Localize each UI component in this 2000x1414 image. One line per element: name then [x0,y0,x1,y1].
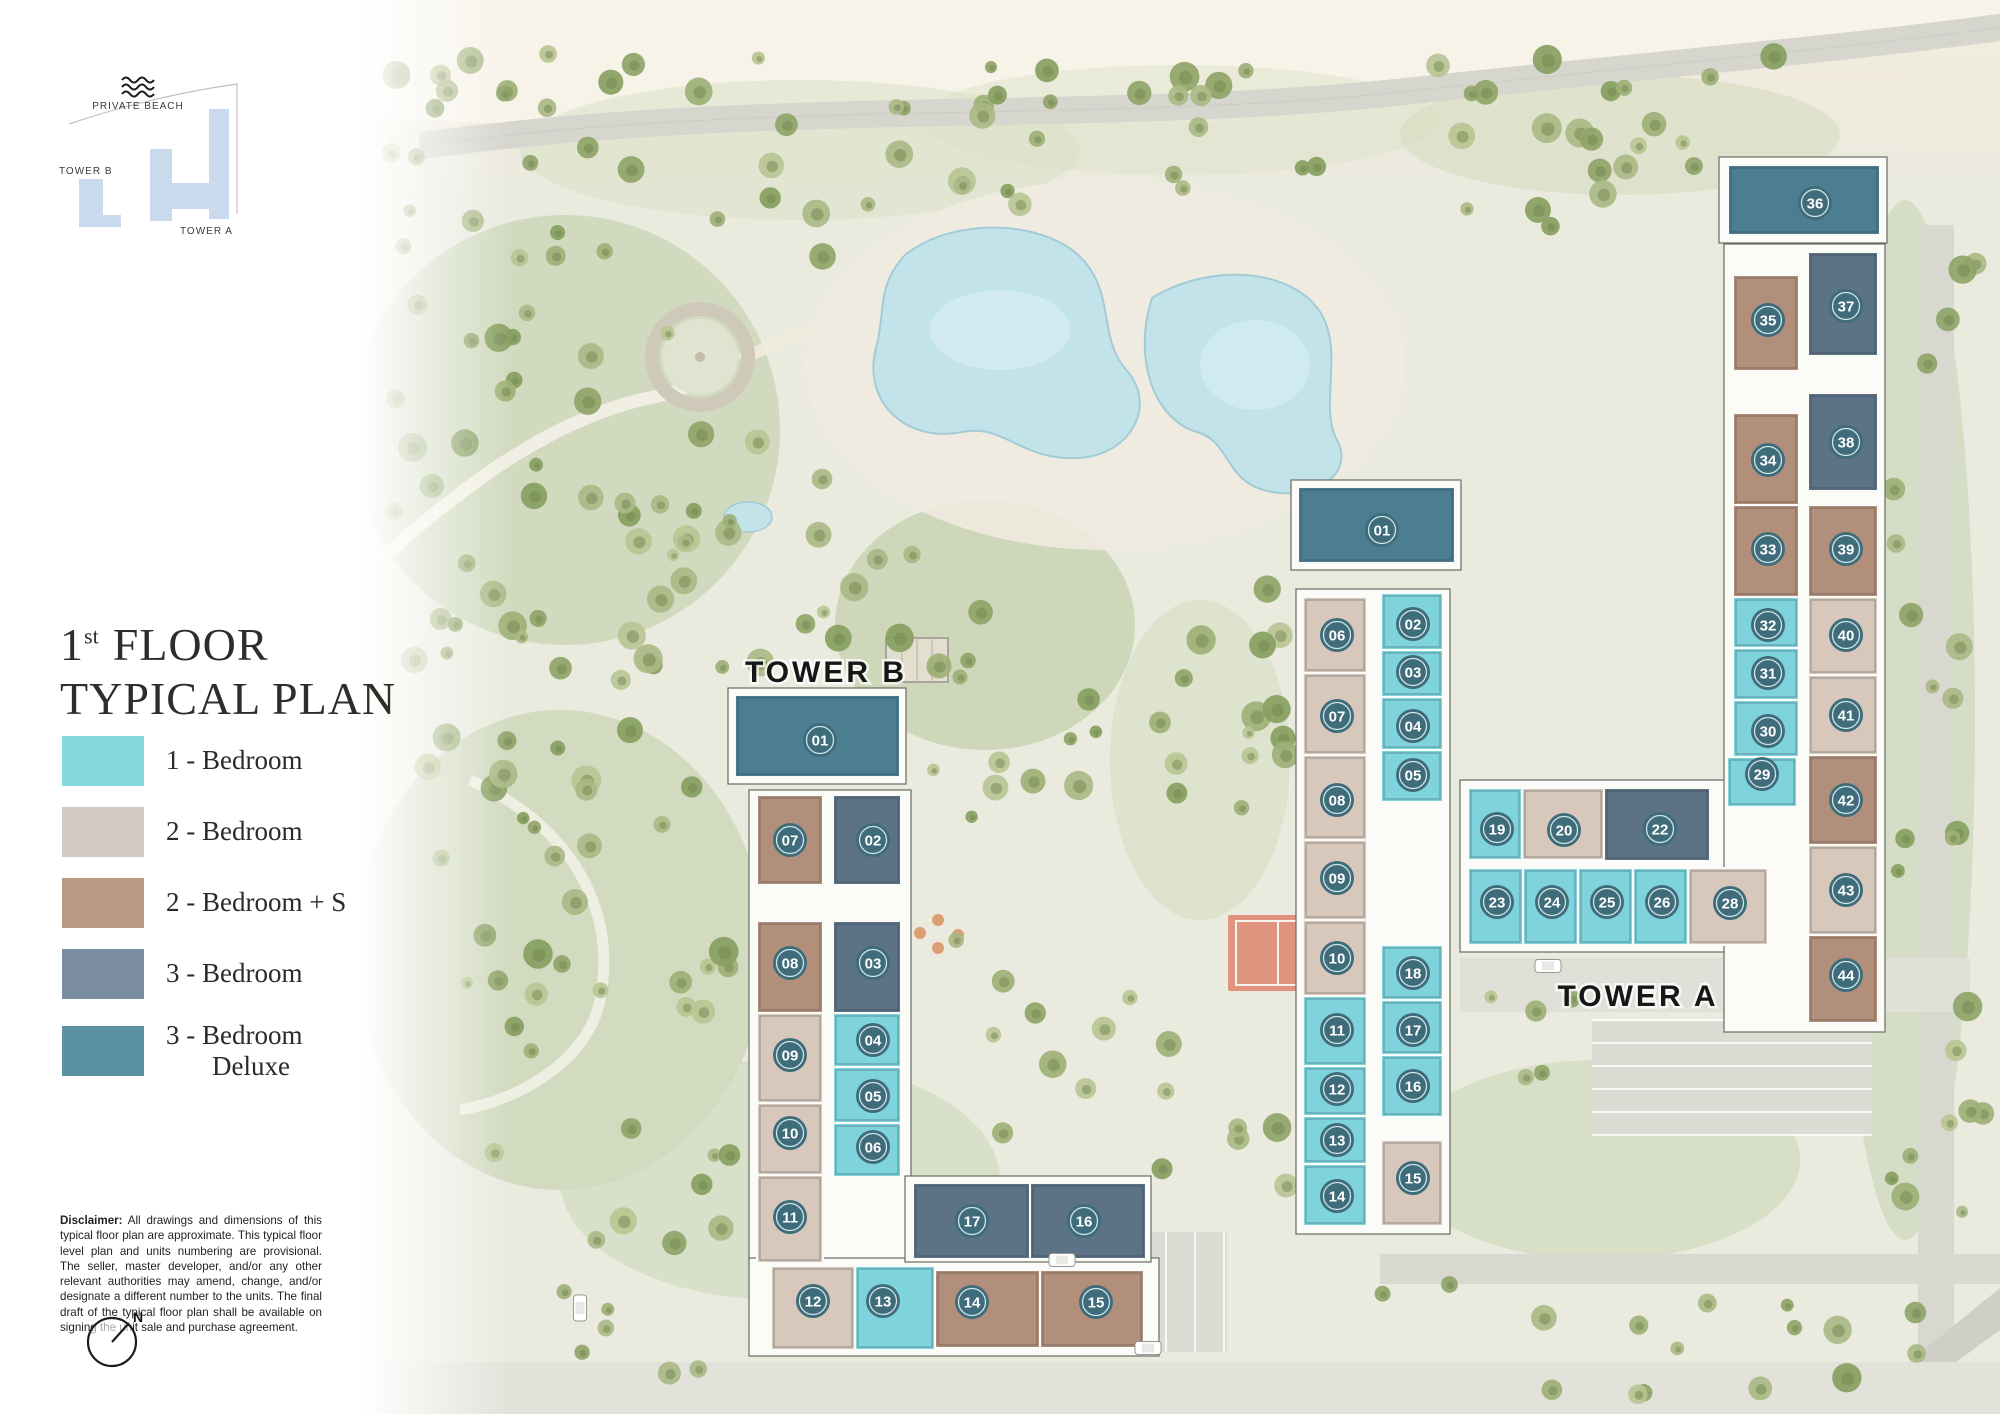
unit-badge-a-03: 03 [1396,655,1430,689]
unit-badge-a-12: 12 [1320,1072,1354,1106]
unit-number: 34 [1760,452,1777,469]
unit-badge-b-13: 13 [866,1284,900,1318]
unit-badge-a-39: 39 [1829,532,1863,566]
unit-badge-b-09: 09 [773,1038,807,1072]
unit-number: 14 [1329,1188,1346,1205]
unit-badge-a-17: 17 [1396,1013,1430,1047]
unit-number: 24 [1544,894,1561,911]
unit-badge-a-37: 37 [1829,289,1863,323]
car [574,1295,587,1321]
unit-badge-a-24: 24 [1535,885,1569,919]
floor-plan-page: 0107020803090405100611121317161415010607… [0,0,2000,1414]
unit-number: 12 [805,1293,822,1310]
unit-number: 41 [1838,707,1855,724]
unit-number: 36 [1807,195,1824,212]
unit-number: 13 [875,1293,892,1310]
tower-b-unit-14 [935,1270,1040,1348]
unit-number: 06 [1329,627,1346,644]
unit-number: 35 [1760,312,1777,329]
unit-number: 05 [865,1088,882,1105]
unit-number: 26 [1654,894,1671,911]
unit-badge-a-18: 18 [1396,956,1430,990]
unit-number: 08 [782,955,799,972]
unit-number: 40 [1838,627,1855,644]
car [1135,1342,1161,1355]
unit-badge-a-40: 40 [1829,618,1863,652]
unit-number: 01 [812,732,829,749]
unit-badge-a-22: 22 [1643,812,1677,846]
unit-number: 02 [1405,616,1422,633]
unit-number: 17 [1405,1022,1422,1039]
unit-number: 11 [782,1209,798,1226]
unit-badge-b-05: 05 [856,1079,890,1113]
unit-number: 01 [1374,522,1391,539]
unit-number: 08 [1329,792,1346,809]
unit-number: 33 [1760,541,1777,558]
unit-number: 43 [1838,882,1855,899]
unit-number: 14 [964,1294,981,1311]
unit-badge-a-05: 05 [1396,758,1430,792]
unit-badge-b-08: 08 [773,946,807,980]
unit-badge-a-43: 43 [1829,873,1863,907]
unit-badge-a-08: 08 [1320,783,1354,817]
unit-number: 16 [1076,1213,1093,1230]
unit-badge-a-04: 04 [1396,709,1430,743]
unit-badge-b-11: 11 [773,1200,807,1234]
unit-badge-a-01: 01 [1365,513,1399,547]
unit-badge-b-06: 06 [856,1130,890,1164]
unit-number: 15 [1405,1170,1422,1187]
unit-badge-a-02: 02 [1396,607,1430,641]
car [1049,1254,1075,1267]
unit-number: 03 [865,955,882,972]
unit-badge-a-10: 10 [1320,941,1354,975]
unit-number: 10 [782,1125,799,1142]
unit-badge-a-23: 23 [1480,885,1514,919]
unit-badge-a-38: 38 [1829,425,1863,459]
unit-badge-b-14: 14 [955,1285,989,1319]
unit-badge-a-34: 34 [1751,443,1785,477]
unit-badge-a-29: 29 [1745,757,1779,791]
tower-b-plan-label: TOWER B [745,656,907,689]
unit-badge-a-07: 07 [1320,699,1354,733]
unit-number: 05 [1405,767,1422,784]
unit-number: 07 [782,832,799,849]
unit-number: 16 [1405,1078,1422,1095]
unit-number: 30 [1760,723,1777,740]
unit-number: 38 [1838,434,1855,451]
unit-badge-b-10: 10 [773,1116,807,1150]
unit-number: 42 [1838,792,1855,809]
unit-number: 06 [865,1139,882,1156]
unit-badge-a-13: 13 [1320,1123,1354,1157]
car [1535,960,1561,973]
unit-badge-a-19: 19 [1480,812,1514,846]
unit-badge-a-30: 30 [1751,714,1785,748]
unit-badge-a-28: 28 [1713,886,1747,920]
unit-number: 20 [1556,822,1573,839]
unit-badge-a-33: 33 [1751,532,1785,566]
unit-badge-b-03: 03 [856,946,890,980]
unit-number: 09 [1329,870,1346,887]
unit-number: 37 [1838,298,1855,315]
unit-badge-a-31: 31 [1751,656,1785,690]
unit-number: 25 [1599,894,1616,911]
unit-badge-a-20: 20 [1547,813,1581,847]
unit-badge-a-14: 14 [1320,1179,1354,1213]
unit-number: 29 [1754,766,1771,783]
unit-badge-a-32: 32 [1751,608,1785,642]
unit-number: 02 [865,832,882,849]
unit-number: 39 [1838,541,1855,558]
unit-number: 07 [1329,708,1346,725]
unit-number: 18 [1405,965,1422,982]
unit-badge-a-42: 42 [1829,783,1863,817]
unit-badge-a-36: 36 [1798,186,1832,220]
unit-number: 15 [1088,1294,1105,1311]
tower-a-plan-label: TOWER A [1558,980,1719,1013]
site-plan: 0107020803090405100611121317161415010607… [0,0,2000,1414]
unit-number: 11 [1329,1022,1345,1039]
unit-number: 19 [1489,821,1506,838]
unit-badge-b-16: 16 [1067,1204,1101,1238]
unit-badge-a-15: 15 [1396,1161,1430,1195]
unit-badge-a-09: 09 [1320,861,1354,895]
unit-badge-a-25: 25 [1590,885,1624,919]
unit-number: 09 [782,1047,799,1064]
unit-badge-b-01: 01 [803,723,837,757]
left-white-area [0,0,360,1414]
unit-badge-b-02: 02 [856,823,890,857]
unit-number: 12 [1329,1081,1346,1098]
unit-badge-b-17: 17 [955,1204,989,1238]
unit-number: 10 [1329,950,1346,967]
left-fade [360,0,510,1414]
unit-number: 04 [1405,718,1422,735]
unit-number: 13 [1329,1132,1346,1149]
unit-badge-a-26: 26 [1645,885,1679,919]
unit-badge-b-12: 12 [796,1284,830,1318]
unit-number: 23 [1489,894,1506,911]
unit-badge-a-16: 16 [1396,1069,1430,1103]
unit-number: 04 [865,1032,882,1049]
unit-number: 28 [1722,895,1739,912]
unit-number: 03 [1405,664,1422,681]
unit-badge-a-44: 44 [1829,958,1863,992]
unit-badge-b-15: 15 [1079,1285,1113,1319]
unit-number: 44 [1838,967,1855,984]
unit-number: 22 [1652,821,1669,838]
unit-badge-a-11: 11 [1320,1013,1354,1047]
unit-badge-a-06: 06 [1320,618,1354,652]
unit-number: 32 [1760,617,1777,634]
unit-badge-a-41: 41 [1829,698,1863,732]
unit-badge-b-04: 04 [856,1023,890,1057]
unit-badge-a-35: 35 [1751,303,1785,337]
unit-number: 17 [964,1213,981,1230]
unit-badge-b-07: 07 [773,823,807,857]
unit-number: 31 [1760,665,1777,682]
